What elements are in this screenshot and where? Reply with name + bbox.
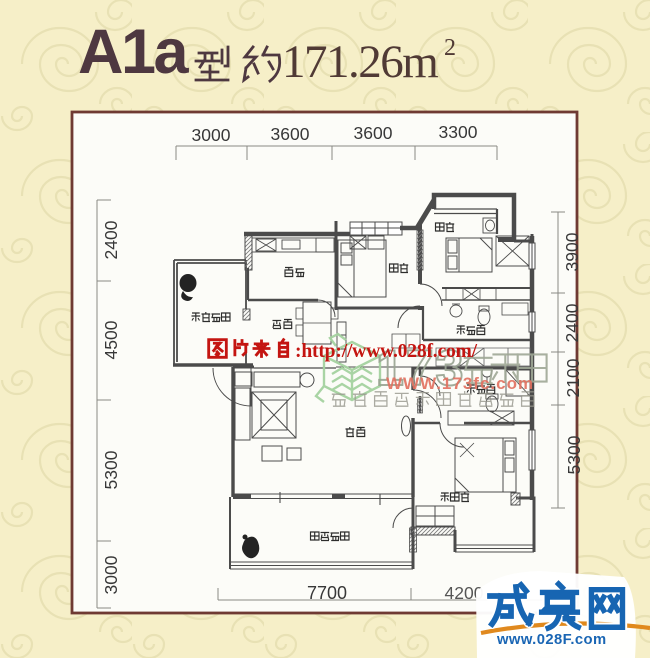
svg-text:2100: 2100 [563, 358, 583, 397]
svg-text:3900: 3900 [562, 232, 582, 271]
svg-text:3300: 3300 [439, 122, 478, 142]
svg-text:2400: 2400 [562, 303, 582, 342]
svg-text:A1a: A1a [78, 17, 190, 87]
svg-text:7700: 7700 [307, 583, 347, 603]
svg-text:2400: 2400 [101, 220, 121, 259]
svg-text:5300: 5300 [564, 435, 584, 474]
svg-text:3600: 3600 [354, 123, 393, 143]
svg-text:4500: 4500 [101, 320, 121, 359]
svg-text:171.26m: 171.26m [282, 36, 438, 88]
svg-text:WWW.173fc.com: WWW.173fc.com [386, 374, 534, 393]
svg-text:3600: 3600 [271, 124, 310, 144]
svg-text::http://www.028f.com/: :http://www.028f.com/ [295, 341, 478, 362]
svg-text:3000: 3000 [101, 555, 121, 594]
svg-text:5300: 5300 [101, 450, 121, 489]
svg-text:www.028F.com: www.028F.com [496, 632, 607, 648]
svg-text:2: 2 [444, 35, 456, 61]
svg-text:3000: 3000 [192, 125, 231, 145]
